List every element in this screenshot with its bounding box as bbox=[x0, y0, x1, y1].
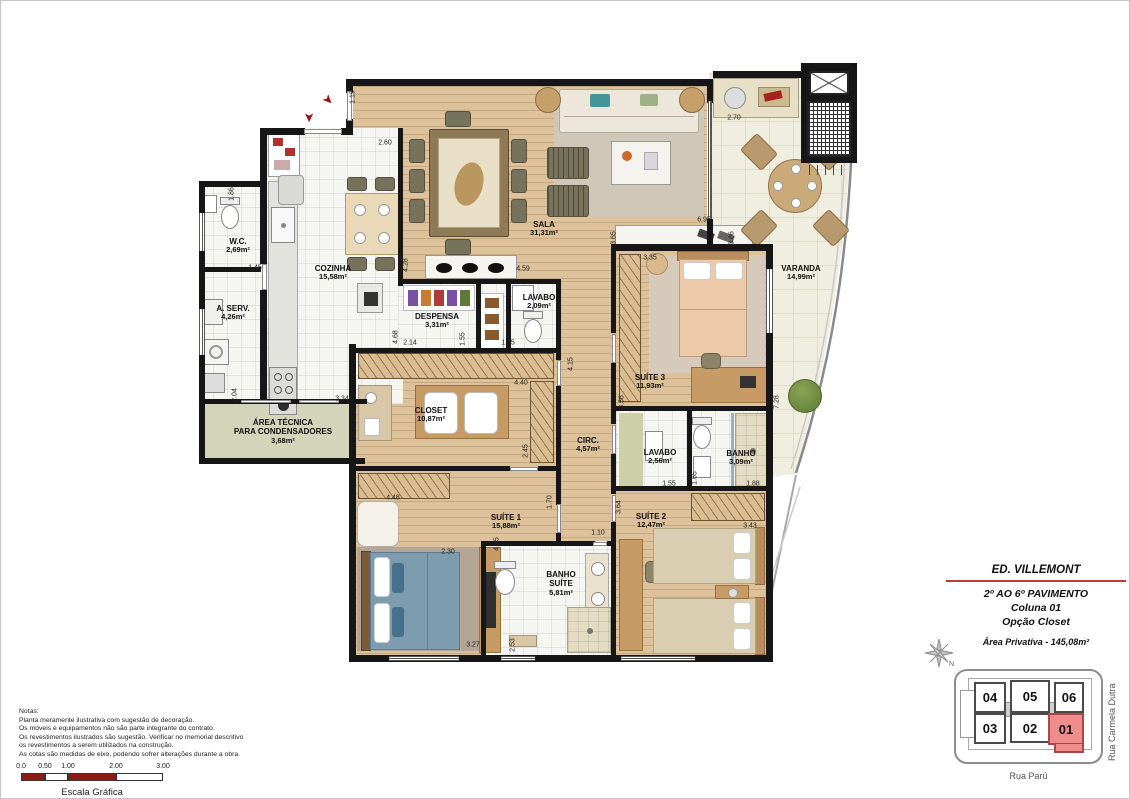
window bbox=[708, 101, 712, 219]
key-plan-unit-03: 03 bbox=[974, 713, 1006, 744]
wall bbox=[263, 128, 305, 135]
wall bbox=[199, 458, 365, 464]
key-plan-unit-05: 05 bbox=[1010, 680, 1050, 713]
lavabo2-tiled-wall bbox=[619, 413, 643, 487]
window bbox=[389, 656, 459, 661]
vanity-sink bbox=[591, 562, 605, 576]
dining-chair bbox=[409, 139, 425, 163]
pillow bbox=[733, 628, 751, 650]
pantry-shelf bbox=[403, 285, 475, 311]
street-label-bottom: Rua Parú bbox=[954, 771, 1103, 781]
water-heater bbox=[203, 373, 225, 393]
burner bbox=[274, 386, 282, 394]
side-table-left bbox=[535, 87, 561, 113]
pillow bbox=[374, 557, 390, 597]
plate bbox=[378, 204, 390, 216]
wall bbox=[556, 386, 561, 471]
room-label-suite3: SUÍTE 311,93m² bbox=[635, 373, 665, 391]
entry-arrow-icon: ➤ bbox=[303, 112, 316, 123]
wall bbox=[611, 363, 616, 424]
toilet-tank bbox=[692, 417, 712, 425]
street-label-right: Rua Carmela Dutra bbox=[1107, 673, 1117, 761]
window bbox=[621, 656, 695, 661]
door bbox=[612, 334, 616, 363]
dimension-label: 2.30 bbox=[441, 549, 455, 556]
scale-segment bbox=[68, 773, 116, 781]
room-area: 10,87m² bbox=[415, 415, 447, 424]
dimension-label: 7.28 bbox=[774, 395, 781, 409]
unit-01-balcony-tab bbox=[1054, 744, 1084, 753]
plate bbox=[354, 204, 366, 216]
key-plan-unit-02: 02 bbox=[1010, 713, 1050, 743]
scale-tick: 0.50 bbox=[38, 763, 52, 770]
room-area: 14,99m² bbox=[781, 273, 820, 282]
papers bbox=[364, 418, 380, 436]
wall bbox=[481, 546, 486, 662]
wall bbox=[556, 279, 561, 353]
wall bbox=[611, 541, 616, 662]
drain bbox=[281, 223, 286, 228]
wall bbox=[260, 187, 267, 264]
nightstand-suite2 bbox=[715, 585, 749, 599]
bottles bbox=[485, 314, 499, 324]
burner bbox=[274, 373, 282, 381]
room-area: 5,81m² bbox=[537, 589, 585, 598]
wall bbox=[611, 251, 616, 333]
key-plan-unit-01-highlighted: 01 bbox=[1048, 713, 1084, 745]
decor-red-jar bbox=[273, 138, 283, 146]
wall bbox=[260, 290, 267, 404]
toilet bbox=[221, 205, 239, 229]
closet-shelves-top bbox=[358, 353, 554, 379]
pillow bbox=[374, 603, 390, 643]
plate bbox=[378, 232, 390, 244]
dimension-label: 4.40 bbox=[514, 380, 528, 387]
shower-suite bbox=[567, 607, 611, 653]
decor-jar bbox=[274, 160, 290, 170]
room-area: 4,26m² bbox=[216, 313, 249, 322]
dimension-label: 4.28 bbox=[403, 258, 410, 272]
room-label-banho: BANHO3,09m² bbox=[726, 449, 755, 467]
headboard bbox=[755, 597, 765, 655]
duvet-fold bbox=[427, 552, 428, 650]
title-block: ED. VILLEMONT 2º AO 6º PAVIMENTO Coluna … bbox=[946, 564, 1126, 647]
kitchen-sink bbox=[271, 207, 295, 243]
decor-book bbox=[644, 152, 658, 170]
decor-bowl bbox=[622, 151, 632, 161]
dimension-label: 4.59 bbox=[516, 266, 530, 273]
dining-chair bbox=[409, 169, 425, 193]
notes-line: As cotas são medidas de eixo, podendo so… bbox=[19, 751, 243, 760]
plant-bush bbox=[788, 379, 822, 413]
wc-sink bbox=[203, 195, 217, 213]
room-area: 2,69m² bbox=[226, 246, 250, 255]
scale-tick: 0.0 bbox=[16, 763, 26, 770]
floor-range: 2º AO 6º PAVIMENTO bbox=[946, 588, 1126, 600]
dining-chair bbox=[511, 199, 527, 223]
dining-chair bbox=[511, 169, 527, 193]
kitchen-chair bbox=[375, 177, 395, 191]
dimension-label: 4.48 bbox=[386, 495, 400, 502]
option-label: Opção Closet bbox=[946, 616, 1126, 628]
kitchen-upper-cabinet bbox=[268, 133, 300, 177]
wall bbox=[611, 244, 773, 251]
dimension-label: 2.14 bbox=[403, 340, 417, 347]
armchair-2 bbox=[547, 185, 589, 217]
washing-machine bbox=[203, 339, 229, 365]
room-area: 11,93m² bbox=[635, 382, 665, 391]
lamp bbox=[728, 588, 738, 598]
notes-block: Notas: Planta meramente ilustrativa com … bbox=[19, 708, 243, 760]
pillow-accent bbox=[392, 607, 404, 637]
plate bbox=[791, 164, 801, 174]
suite2-desk bbox=[619, 539, 643, 651]
burner bbox=[285, 386, 293, 394]
wall bbox=[611, 522, 616, 546]
washer-drum bbox=[209, 345, 223, 359]
dimension-label: 3.66 bbox=[729, 231, 736, 245]
vent-louver bbox=[241, 400, 291, 403]
wall bbox=[556, 471, 561, 505]
room-label-area_servico: A. SERV.4,26m² bbox=[216, 304, 249, 322]
wall bbox=[349, 344, 356, 662]
pillow bbox=[683, 262, 711, 280]
side-table-right bbox=[679, 87, 705, 113]
dimension-label: 2.04 bbox=[232, 388, 239, 402]
wardrobe-suite2 bbox=[691, 493, 765, 521]
varanda-chair bbox=[740, 133, 778, 171]
toilet bbox=[495, 569, 515, 595]
room-label-lavabo2: LAVABO2,56m² bbox=[644, 448, 677, 466]
kitchen-chair bbox=[375, 257, 395, 271]
title-divider bbox=[946, 580, 1126, 582]
north-label: N bbox=[949, 661, 954, 668]
armchair-1 bbox=[547, 147, 589, 179]
fridge bbox=[278, 175, 304, 205]
room-label-area_tecnica: ÁREA TÉCNICAPARA CONDENSADORES3,68m² bbox=[213, 418, 353, 446]
pillow bbox=[733, 558, 751, 580]
room-label-varanda: VARANDA14,99m² bbox=[781, 264, 820, 282]
scale-caption: Escala Gráfica bbox=[61, 787, 123, 798]
dimension-label: 3.27 bbox=[466, 642, 480, 649]
pantry-jar bbox=[434, 290, 444, 306]
room-area: 31,31m² bbox=[530, 229, 558, 238]
door bbox=[612, 425, 616, 454]
door bbox=[557, 504, 561, 533]
room-area: 15,88m² bbox=[491, 522, 521, 531]
room-label-suite2: SUÍTE 212,47m² bbox=[636, 512, 666, 530]
wall bbox=[346, 79, 713, 86]
sofa-pillow-green bbox=[640, 94, 658, 106]
door bbox=[593, 542, 607, 546]
dimension-label: 1.55 bbox=[662, 481, 676, 488]
room-area: 15,58m² bbox=[315, 273, 351, 282]
notes-heading: Notas: bbox=[19, 708, 243, 717]
stair-hatch bbox=[807, 101, 851, 157]
dimension-label: 6.95 bbox=[697, 217, 711, 224]
dimension-label: 3.34 bbox=[335, 396, 349, 403]
wall bbox=[713, 71, 805, 78]
vent-louver bbox=[299, 400, 339, 403]
room-area: 2,56m² bbox=[644, 457, 677, 466]
window bbox=[199, 213, 205, 251]
wall bbox=[556, 348, 561, 360]
grille-comb bbox=[809, 165, 849, 175]
duct-shaft-icon bbox=[809, 71, 849, 95]
decor-bowl bbox=[488, 263, 504, 273]
room-label-suite1: SUÍTE 115,88m² bbox=[491, 513, 521, 531]
vanity-sink bbox=[591, 592, 605, 606]
dining-chair bbox=[445, 239, 471, 255]
decor-red-jar bbox=[285, 148, 295, 156]
toilet-tank bbox=[494, 561, 516, 569]
dining-table bbox=[429, 129, 509, 237]
dimension-label: 1.70 bbox=[547, 495, 554, 509]
wall bbox=[707, 79, 713, 103]
sofa-seam bbox=[564, 116, 694, 117]
room-label-cozinha: COZINHA15,58m² bbox=[315, 264, 351, 282]
bottles bbox=[485, 298, 499, 308]
notes-line: Os revestimentos ilustrados são sugestão… bbox=[19, 734, 243, 743]
pillow bbox=[733, 602, 751, 624]
window bbox=[199, 309, 205, 355]
private-area-label: Área Privativa - 145,08m² bbox=[946, 637, 1126, 647]
room-area: 3,09m² bbox=[726, 458, 755, 467]
sofa bbox=[559, 89, 699, 133]
suite1-armchair bbox=[357, 501, 399, 547]
wall bbox=[353, 348, 561, 353]
room-label-wc: W.C.2,69m² bbox=[226, 237, 250, 255]
scale-tick: 3.00 bbox=[156, 763, 170, 770]
toilet bbox=[693, 425, 711, 449]
key-plan-unit-04: 04 bbox=[974, 682, 1006, 713]
wall bbox=[353, 466, 510, 471]
decor-bowl bbox=[436, 263, 452, 273]
plate bbox=[354, 232, 366, 244]
dimension-label: 1.65 bbox=[692, 471, 699, 485]
bed-suite2-b bbox=[653, 597, 765, 655]
wall bbox=[476, 284, 481, 353]
laptop bbox=[740, 376, 756, 388]
room-label-despensa: DESPENSA3,31m² bbox=[415, 312, 459, 330]
dimension-label: 1.35 bbox=[501, 340, 515, 347]
sofa-pillow-teal bbox=[590, 94, 610, 107]
door bbox=[304, 129, 342, 134]
dimension-label: 3.35 bbox=[643, 255, 657, 262]
room-area: 3,31m² bbox=[415, 321, 459, 330]
room-area: 2,09m² bbox=[523, 302, 556, 311]
dining-chair bbox=[511, 139, 527, 163]
floor-circulacao bbox=[556, 279, 616, 546]
varanda-counter bbox=[713, 78, 799, 118]
wall bbox=[346, 119, 353, 135]
scale-segment bbox=[45, 773, 68, 781]
room-label-lavabo: LAVABO2,09m² bbox=[523, 293, 556, 311]
scale-segment bbox=[116, 773, 163, 781]
notes-line: Planta meramente ilustrativa com sugestã… bbox=[19, 717, 243, 726]
oven-cabinet bbox=[357, 283, 383, 313]
room-area: 4,57m² bbox=[576, 445, 600, 454]
shower-drain bbox=[587, 628, 593, 634]
pantry-jar bbox=[408, 290, 418, 306]
dimension-label: 4.15 bbox=[568, 357, 575, 371]
bed-suite2-a bbox=[653, 527, 765, 585]
dimension-label: 2.53 bbox=[510, 638, 517, 652]
oven bbox=[364, 292, 378, 306]
column-label: Coluna 01 bbox=[946, 602, 1126, 614]
plate bbox=[773, 181, 783, 191]
scale-tick: 2.00 bbox=[109, 763, 123, 770]
scale-segment bbox=[21, 773, 45, 781]
dining-chair bbox=[445, 111, 471, 127]
kitchen-table bbox=[345, 193, 399, 255]
plate bbox=[791, 198, 801, 208]
dining-chair bbox=[409, 199, 425, 223]
toilet bbox=[524, 319, 542, 343]
room-area: 3,68m² bbox=[213, 437, 353, 446]
building-name: ED. VILLEMONT bbox=[946, 564, 1126, 576]
varanda-sink bbox=[724, 87, 746, 109]
scale-tick: 1.00 bbox=[61, 763, 75, 770]
key-plan-unit-06: 06 bbox=[1054, 682, 1084, 713]
console-sideboard bbox=[425, 255, 517, 279]
varanda-chair bbox=[812, 209, 850, 247]
dimension-label: 1.45 bbox=[248, 265, 262, 272]
bed-suite3 bbox=[677, 251, 749, 359]
door bbox=[262, 264, 267, 290]
dimension-label: 1.55 bbox=[460, 332, 467, 346]
wall bbox=[616, 406, 773, 411]
dimension-label: 3.65 bbox=[611, 231, 618, 245]
dimension-label: 2.60 bbox=[378, 140, 392, 147]
window bbox=[766, 269, 773, 333]
coffee-table bbox=[611, 141, 671, 185]
entry-arrow-icon: ➤ bbox=[320, 91, 337, 108]
plate bbox=[807, 181, 817, 191]
pillow bbox=[715, 262, 743, 280]
window bbox=[501, 656, 535, 661]
stove bbox=[269, 367, 297, 415]
pillow bbox=[733, 532, 751, 554]
dimension-label: 1.10 bbox=[591, 530, 605, 537]
duvet-fold bbox=[679, 309, 747, 310]
room-name: BANHO SUÍTE bbox=[537, 570, 585, 589]
door bbox=[510, 467, 538, 471]
pillow-accent bbox=[392, 563, 404, 593]
kitchen-chair bbox=[347, 177, 367, 191]
wardrobe-suite1 bbox=[358, 473, 450, 499]
dimension-label: 2.45 bbox=[523, 444, 530, 458]
door bbox=[557, 360, 561, 386]
closet-shelves-right bbox=[530, 381, 554, 463]
room-label-closet: CLOSET10,87m² bbox=[415, 406, 447, 424]
dimension-label: 2.70 bbox=[727, 115, 741, 122]
dimension-label: 3.64 bbox=[616, 500, 623, 514]
notes-line: Os móveis e equipamentos não são parte i… bbox=[19, 725, 243, 734]
burner bbox=[285, 373, 293, 381]
floor-plan-page: ➤ ➤ 1.152.601.861.454.284.592.144.681.55… bbox=[0, 0, 1130, 799]
bottles bbox=[485, 330, 499, 340]
room-label-circulacao: CIRC.4,57m² bbox=[576, 436, 600, 454]
toilet-tank bbox=[523, 311, 543, 319]
dimension-label: 1.15 bbox=[350, 90, 357, 104]
wall bbox=[260, 128, 267, 189]
headboard bbox=[755, 527, 765, 585]
dimension-label: 3.56 bbox=[619, 395, 626, 409]
dimension-label: 1.86 bbox=[229, 187, 236, 201]
pantry-jar bbox=[460, 290, 470, 306]
dimension-label: 3.43 bbox=[743, 523, 757, 530]
dimension-label: 1.88 bbox=[746, 481, 760, 488]
room-name: ÁREA TÉCNICA bbox=[213, 418, 353, 427]
room-area: 12,47m² bbox=[636, 521, 666, 530]
room-label-banho_suite: BANHO SUÍTE5,81m² bbox=[537, 570, 585, 598]
pantry-jar bbox=[421, 290, 431, 306]
room-label-sala: SALA31,31m² bbox=[530, 220, 558, 238]
bed-suite1 bbox=[361, 551, 461, 651]
closet-side-table bbox=[358, 385, 392, 441]
pantry-jar bbox=[447, 290, 457, 306]
decor-bowl bbox=[462, 263, 478, 273]
desk-suite3 bbox=[691, 367, 769, 403]
dimension-label: 4.15 bbox=[494, 537, 501, 551]
dimension-label: 4.68 bbox=[393, 330, 400, 344]
desk-chair bbox=[701, 353, 721, 369]
notes-line: os revestimentos a serem utilizados na c… bbox=[19, 742, 243, 751]
graphic-scale: 0.0 0.50 1.00 2.00 3.00 Escala Gráfica bbox=[21, 773, 163, 781]
cushion bbox=[464, 392, 498, 434]
